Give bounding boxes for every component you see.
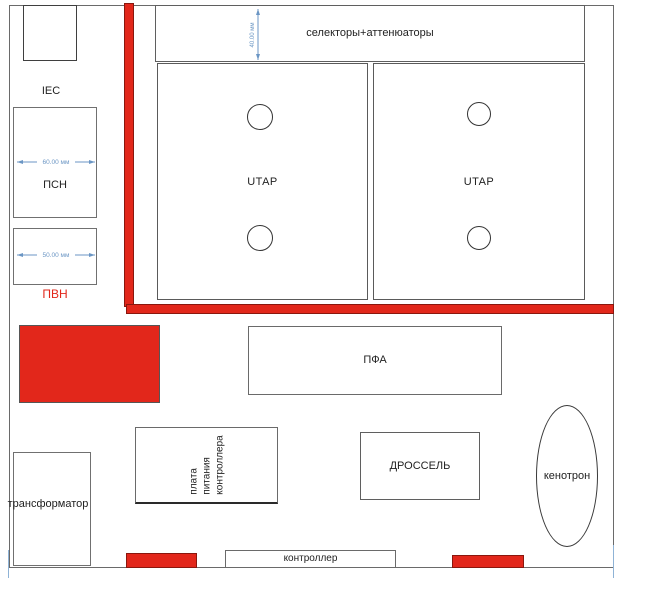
left-guide-line xyxy=(8,550,9,578)
utap-left-box: UTAP xyxy=(157,63,368,300)
utap-left-hole-top xyxy=(247,104,273,130)
pfa-label: ПФА xyxy=(249,354,501,366)
layout-drawing: IEC 60.00 мм ПСН 50.00 мм ПВН селекторы+… xyxy=(0,0,645,598)
utap-right-box: UTAP xyxy=(373,63,585,300)
utap-left-hole-bottom xyxy=(247,225,273,251)
controller-box: контроллер xyxy=(225,550,396,568)
selectors-height-dimension: 40.00 мм xyxy=(244,7,266,62)
kenotron-ellipse: кенотрон xyxy=(536,405,598,547)
iec-label: IEC xyxy=(23,85,79,97)
transformer-label: трансформатор xyxy=(2,498,94,510)
psn-dimension-text: 60.00 мм xyxy=(42,159,70,166)
utap-right-label: UTAP xyxy=(374,176,584,188)
iec-box xyxy=(23,5,77,61)
psn-box: 60.00 мм ПСН xyxy=(13,107,97,218)
selectors-attenuators-box: селекторы+аттенюаторы 40.00 мм xyxy=(155,5,585,62)
selectors-dimension-text: 40.00 мм xyxy=(250,23,256,48)
utap-right-hole-top xyxy=(467,102,491,126)
controller-label: контроллер xyxy=(226,553,395,564)
psn-label: ПСН xyxy=(14,179,96,191)
kenotron-label: кенотрон xyxy=(544,470,590,482)
controller-power-board-box: плата питания контроллера xyxy=(135,427,278,504)
pvn-dimension-text: 50.00 мм xyxy=(42,252,70,259)
red-horizontal-bar xyxy=(126,304,614,314)
psn-width-dimension: 60.00 мм xyxy=(14,153,98,169)
red-block xyxy=(19,325,160,403)
controller-power-board-line2: питания xyxy=(200,435,213,494)
red-bar-bottom-right xyxy=(452,555,524,568)
controller-power-board-line1: плата xyxy=(187,435,200,494)
pfa-box: ПФА xyxy=(248,326,502,395)
pvn-label: ПВН xyxy=(13,287,97,301)
pvn-width-dimension: 50.00 мм xyxy=(14,246,98,262)
utap-right-hole-bottom xyxy=(467,226,491,250)
red-vertical-bar xyxy=(124,3,134,307)
pvn-box: 50.00 мм xyxy=(13,228,97,285)
choke-label: ДРОССЕЛЬ xyxy=(361,460,479,472)
choke-box: ДРОССЕЛЬ xyxy=(360,432,480,500)
controller-power-board-line3: контроллера xyxy=(213,435,226,494)
utap-left-label: UTAP xyxy=(158,176,367,188)
controller-power-board-label: плата питания контроллера xyxy=(187,435,226,494)
right-guide-line xyxy=(613,545,614,578)
red-bar-bottom-left xyxy=(126,553,197,568)
selectors-attenuators-label: селекторы+аттенюаторы xyxy=(156,27,584,39)
